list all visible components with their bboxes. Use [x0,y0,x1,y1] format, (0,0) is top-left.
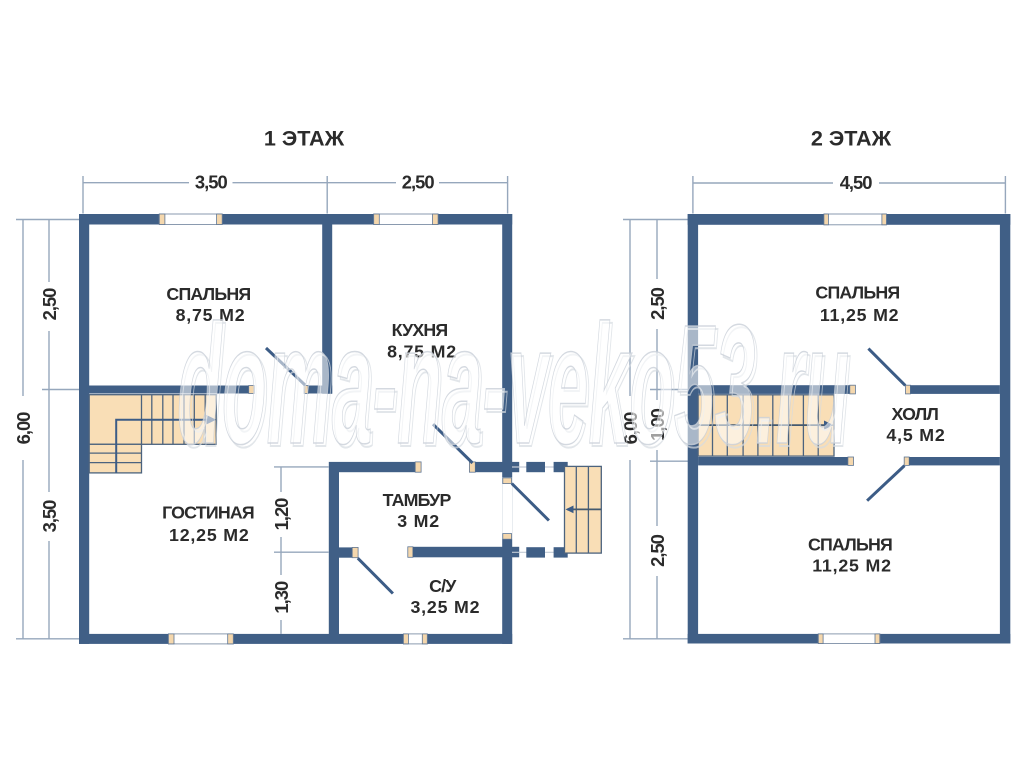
svg-text:СПАЛЬНЯ: СПАЛЬНЯ [808,534,892,554]
svg-text:1 ЭТАЖ: 1 ЭТАЖ [264,125,345,150]
svg-text:12,25 М2: 12,25 М2 [169,525,250,545]
svg-text:3,25 М2: 3,25 М2 [410,597,480,617]
svg-text:11,25 М2: 11,25 М2 [812,555,892,575]
svg-text:2 ЭТАЖ: 2 ЭТАЖ [811,125,892,150]
svg-text:6,00: 6,00 [13,412,34,445]
svg-text:2,50: 2,50 [647,534,668,567]
svg-text:4,5 М2: 4,5 М2 [886,425,945,445]
svg-text:ГОСТИНАЯ: ГОСТИНАЯ [162,503,254,523]
svg-text:doma-na-veko53.ru: doma-na-veko53.ru [177,290,849,480]
svg-text:3,50: 3,50 [39,500,60,533]
svg-text:С/У: С/У [429,576,457,596]
svg-text:3,50: 3,50 [195,172,228,193]
svg-text:ТАМБУР: ТАМБУР [383,490,452,510]
svg-text:1,20: 1,20 [271,498,292,531]
svg-text:2,50: 2,50 [39,288,60,321]
svg-text:3 М2: 3 М2 [397,511,440,531]
svg-text:4,50: 4,50 [840,172,873,193]
svg-text:ХОЛЛ: ХОЛЛ [892,404,939,424]
svg-text:2,50: 2,50 [402,172,435,193]
svg-text:1,30: 1,30 [271,581,292,614]
